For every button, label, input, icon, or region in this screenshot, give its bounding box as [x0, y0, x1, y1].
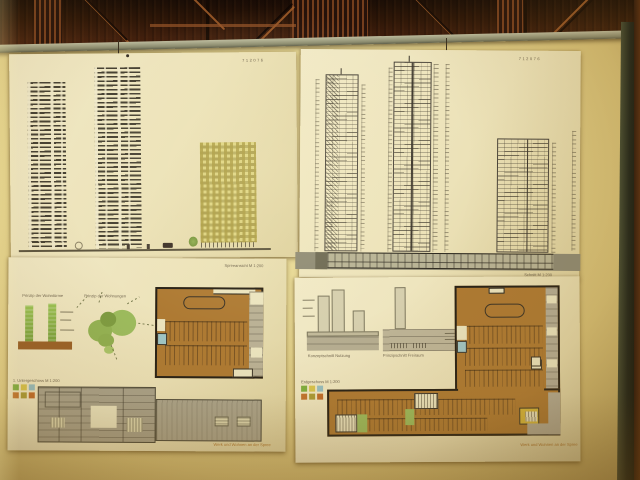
plan-detail-circle [75, 242, 83, 250]
stair-core-blue [157, 333, 167, 345]
project-title: Werk und Wohnen an der Spree [520, 442, 577, 447]
antenna-mark [341, 68, 342, 74]
l-plan [325, 281, 566, 447]
seam-patch [458, 386, 544, 392]
dimension-string [551, 143, 556, 253]
room-block [45, 391, 81, 407]
plan-notch [489, 288, 505, 294]
green-patch [357, 414, 367, 432]
stair-cluster [335, 414, 357, 432]
legend-swatch [21, 392, 27, 398]
elevator-core [410, 63, 414, 251]
figure-silhouette [147, 244, 150, 249]
legend-swatch [309, 386, 315, 392]
diagram-label-line [303, 316, 315, 317]
elevation-tower-mosaic [200, 142, 257, 242]
photo-of-competition-boards: 712076 712076 [0, 0, 640, 480]
ground-band [295, 252, 580, 271]
ramp-oval [183, 296, 225, 309]
poster-top-left-elevations: 712076 [9, 52, 298, 259]
panel-rail [150, 24, 296, 27]
antenna-mark [409, 56, 410, 62]
stair-core [157, 319, 165, 331]
green-tower-bar [25, 305, 33, 341]
floor-plan-long [38, 386, 264, 447]
bubble-ray [127, 297, 140, 305]
parking-rows [165, 345, 247, 365]
tree [189, 237, 198, 247]
section-tower-a [324, 74, 358, 251]
furniture-cluster [215, 416, 229, 426]
wood-edge-right [634, 0, 640, 480]
legend-swatch [301, 394, 307, 400]
bubble-ray [138, 323, 156, 327]
green-tower-bar [48, 303, 56, 341]
poster-bottom-right-plans: Konzeptschnitt Nutzung Prinzipschnitt Fr… [295, 276, 581, 462]
elevation-tower-1 [27, 82, 66, 249]
partition [123, 388, 124, 442]
parking-rows [165, 321, 247, 341]
legend-swatch [29, 384, 35, 390]
ramp-oval [485, 304, 525, 318]
basement-level-line [327, 261, 553, 264]
stair-room [525, 411, 537, 421]
diagram-label-line [303, 308, 313, 309]
basement-section [327, 252, 553, 270]
protruding-room [531, 356, 541, 366]
side-room [547, 359, 557, 367]
elevation-tower-2 [94, 67, 142, 248]
legend-swatch [21, 384, 27, 390]
entry-number: 712076 [519, 57, 541, 62]
legend-swatch [317, 386, 323, 392]
section-tower-c [496, 138, 549, 252]
diagram-label-line [60, 330, 74, 331]
pin [126, 54, 129, 57]
parking-rows [465, 369, 543, 387]
dimension-string [444, 64, 449, 252]
dimension-string [314, 79, 319, 251]
plan-hall [156, 399, 262, 442]
view-caption: Spreeansicht M 1:200 [224, 263, 263, 268]
atrium-room [91, 406, 117, 428]
side-rooms-strip [548, 392, 560, 434]
car-silhouette [163, 243, 173, 248]
units-diagram-title: Prinzip der Wohnungen [84, 294, 126, 299]
stair-hatch [325, 75, 339, 250]
dimension-string [360, 84, 365, 251]
basement-end [315, 252, 327, 269]
stair-room [127, 418, 143, 432]
diagram-label-line [60, 312, 73, 313]
legend-swatch [13, 384, 19, 390]
legend-swatch [13, 392, 19, 398]
unit-bubble-dark [100, 312, 116, 327]
entry-number: 712076 [242, 58, 264, 63]
dimension-string [432, 64, 438, 252]
side-room [547, 327, 557, 335]
parking-rows [465, 325, 543, 343]
base-plinth [18, 341, 72, 349]
green-patch [405, 409, 414, 425]
dimension-string [571, 131, 576, 251]
side-room [547, 295, 557, 303]
project-title: Werk und Wohnen an der Spree [214, 442, 271, 447]
corner-room [250, 293, 263, 305]
figure-silhouette [127, 244, 130, 249]
towers-diagram-title: Prinzip der Wohntürme [22, 293, 63, 298]
legend-swatch [309, 394, 315, 400]
stair-core [457, 326, 467, 340]
legend-swatch [29, 392, 35, 398]
stair-room [51, 417, 65, 427]
plan-left-wing [38, 386, 156, 443]
bubble-ray [76, 296, 87, 308]
l-plan-bar [327, 388, 560, 436]
legend-swatch [317, 394, 323, 400]
stair-core-blue [457, 341, 467, 353]
poster-top-right-sections: 712076 Schnitt M 1:200 [299, 49, 581, 279]
mosaic-tower-base [201, 242, 257, 247]
garage-plan [155, 287, 263, 379]
side-room [251, 348, 262, 358]
party-wall [526, 140, 528, 252]
diagram-label-line [303, 300, 315, 301]
legend-swatch [301, 386, 307, 392]
diagram-label-line [60, 320, 71, 321]
section-tower-b [392, 62, 431, 252]
bottom-room [233, 368, 253, 377]
furniture-cluster [237, 416, 251, 426]
poster-bottom-left-plans: Spreeansicht M 1:200 Prinzip der Wohntür… [7, 257, 286, 451]
stair-cluster [414, 393, 438, 409]
legend-title: 1. Untergeschoss M 1:200 [13, 378, 60, 383]
